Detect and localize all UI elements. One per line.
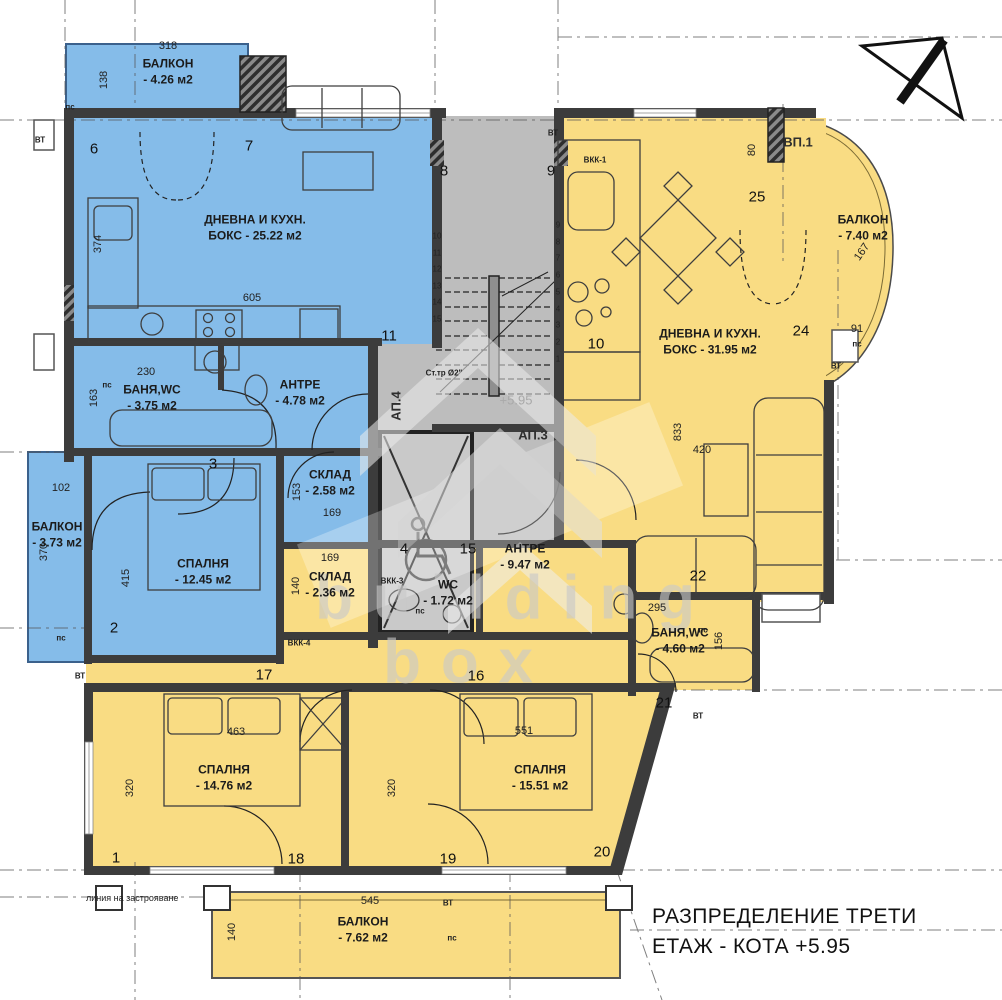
dimension-label: 156: [713, 632, 725, 650]
apartment-label: АП.4: [389, 391, 404, 420]
room-name: СКЛАД: [305, 569, 355, 585]
room-label: БАЛКОН- 7.40 м2: [838, 212, 889, 243]
grid-number: 16: [468, 668, 485, 685]
room-name: БАЛКОН: [143, 56, 194, 72]
room-label: СКЛАД- 2.58 м2: [305, 467, 355, 498]
dimension-label: 545: [361, 895, 379, 907]
dimension-label: 102: [52, 482, 70, 494]
utility-tag: пс: [852, 340, 861, 349]
room-label: СКЛАД- 2.36 м2: [305, 569, 355, 600]
dimension-label: 605: [243, 292, 261, 304]
stair-step-number: 7: [556, 254, 560, 263]
room-area: - 1.72 м2: [423, 593, 473, 609]
room-name: АНТРЕ: [500, 541, 550, 557]
room-label: АНТРЕ- 4.78 м2: [275, 377, 325, 408]
stair-step-number: 14: [433, 298, 442, 307]
stair-step-number: 11: [433, 249, 441, 258]
dimension-label: 91: [851, 323, 863, 335]
grid-number: 24: [793, 323, 810, 340]
room-area: - 12.45 м2: [175, 572, 231, 588]
room-name: БАЛКОН: [338, 914, 389, 930]
grid-number: 25: [749, 189, 766, 206]
utility-tag: пс: [56, 634, 65, 643]
dimension-label: 140: [290, 577, 302, 595]
grid-number: 6: [90, 141, 98, 158]
room-name: WC: [423, 577, 473, 593]
stair-step-number: 2: [556, 338, 560, 347]
room-area: - 4.60 м2: [651, 641, 708, 657]
room-label: СПАЛНЯ- 12.45 м2: [175, 556, 231, 587]
room-area: - 7.62 м2: [338, 930, 389, 946]
room-name: ДНЕВНА И КУХН.: [659, 326, 761, 342]
room-name: СПАЛНЯ: [512, 762, 568, 778]
apartment-label: ВП.1: [783, 135, 813, 150]
room-label: ДНЕВНА И КУХН.БОКС - 25.22 м2: [204, 212, 306, 243]
dimension-label: 463: [227, 726, 245, 738]
utility-tag: пс: [65, 103, 74, 112]
room-label: АНТРЕ- 9.47 м2: [500, 541, 550, 572]
dimension-label: 833: [672, 423, 684, 441]
stair-step-number: 3: [556, 321, 560, 330]
room-label: СПАЛНЯ- 14.76 м2: [196, 762, 252, 793]
grid-number: 22: [690, 568, 707, 585]
room-area: - 2.58 м2: [305, 483, 355, 499]
dimension-label: 551: [515, 725, 533, 737]
room-area: БОКС - 31.95 м2: [659, 342, 761, 358]
room-name: АНТРЕ: [275, 377, 325, 393]
grid-number: 19: [440, 851, 457, 868]
room-name: БАЛКОН: [32, 519, 83, 535]
grid-number: 7: [245, 138, 253, 155]
stair-step-number: 4: [556, 305, 560, 314]
apartment-label: АП.3: [518, 428, 547, 443]
utility-tag: ВКК-1: [584, 156, 607, 165]
room-label: СПАЛНЯ- 15.51 м2: [512, 762, 568, 793]
dimension-label: 415: [120, 569, 132, 587]
building-line-label: линия на застрояване: [86, 893, 178, 903]
grid-number: 21: [656, 695, 673, 712]
grid-number: 20: [594, 844, 611, 861]
dimension-label: 230: [137, 366, 155, 378]
dimension-label: 138: [98, 71, 110, 89]
dimension-label: 163: [88, 389, 100, 407]
stair-step-number: 6: [556, 271, 560, 280]
grid-number: 17: [256, 667, 273, 684]
room-label: ДНЕВНА И КУХН.БОКС - 31.95 м2: [659, 326, 761, 357]
stair-step-number: 12: [433, 265, 442, 274]
utility-tag: ВКК-4: [288, 639, 311, 648]
grid-number: 4: [400, 541, 408, 558]
room-name: СПАЛНЯ: [196, 762, 252, 778]
dimension-label: 318: [159, 40, 177, 52]
room-name: БАНЯ,WC: [123, 382, 180, 398]
dimension-label: 80: [746, 144, 758, 156]
utility-tag: ВТ: [35, 136, 45, 145]
dimension-label: 374: [92, 235, 104, 253]
stair-step-number: 9: [556, 221, 560, 230]
room-area: - 14.76 м2: [196, 778, 252, 794]
room-area: БОКС - 25.22 м2: [204, 228, 306, 244]
dimension-label: 320: [124, 779, 136, 797]
dimension-label: 153: [291, 483, 303, 501]
grid-number: 18: [288, 851, 305, 868]
utility-tag: ВТ: [75, 672, 85, 681]
room-area: - 15.51 м2: [512, 778, 568, 794]
grid-number: 9: [547, 163, 555, 180]
stair-step-number: 5: [556, 288, 560, 297]
utility-tag: ВТ: [831, 362, 841, 371]
room-label: БАЛКОН- 7.62 м2: [338, 914, 389, 945]
grid-number: 2: [110, 620, 118, 637]
stair-step-number: 13: [433, 282, 442, 291]
utility-tag: ВКК-3: [381, 577, 404, 586]
room-area: - 4.26 м2: [143, 72, 194, 88]
utility-tag: пс: [415, 607, 424, 616]
grid-number: 8: [440, 163, 448, 180]
room-name: СКЛАД: [305, 467, 355, 483]
utility-tag: ВТ: [548, 129, 558, 138]
floor-plan-page: building box +5.95 БАЛКОН- 4.26 м2ДНЕВНА…: [0, 0, 1002, 1000]
utility-tag: пс: [698, 626, 707, 635]
dimension-label: 320: [386, 779, 398, 797]
room-name: ДНЕВНА И КУХН.: [204, 212, 306, 228]
utility-tag: Ст.тр Ø2": [426, 369, 463, 378]
dimension-label: 169: [323, 507, 341, 519]
grid-number: 1: [112, 850, 120, 867]
labels-layer: БАЛКОН- 4.26 м2ДНЕВНА И КУХН.БОКС - 25.2…: [0, 0, 1002, 1000]
room-area: - 4.78 м2: [275, 393, 325, 409]
room-area: - 3.75 м2: [123, 398, 180, 414]
utility-tag: пс: [102, 381, 111, 390]
stair-step-number: 10: [433, 232, 442, 241]
stair-step-number: 15: [433, 315, 442, 324]
stair-step-number: 1: [556, 355, 560, 364]
drawing-title-line1: РАЗПРЕДЕЛЕНИЕ ТРЕТИ: [652, 902, 917, 932]
stair-step-number: 8: [556, 238, 560, 247]
room-label: БАНЯ,WC- 3.75 м2: [123, 382, 180, 413]
dimension-label: 167: [852, 241, 872, 263]
room-area: - 9.47 м2: [500, 557, 550, 573]
drawing-title: РАЗПРЕДЕЛЕНИЕ ТРЕТИ ЕТАЖ - КОТА +5.95: [652, 902, 917, 963]
room-label: WC- 1.72 м2: [423, 577, 473, 608]
grid-number: 15: [460, 541, 477, 558]
grid-number: 3: [209, 456, 217, 473]
dimension-label: 420: [693, 444, 711, 456]
grid-number: 11: [381, 328, 397, 345]
room-name: СПАЛНЯ: [175, 556, 231, 572]
room-name: БАЛКОН: [838, 212, 889, 228]
dimension-label: 140: [226, 923, 238, 941]
utility-tag: ВТ: [443, 899, 453, 908]
drawing-title-line2: ЕТАЖ - КОТА +5.95: [652, 932, 917, 962]
utility-tag: пс: [447, 934, 456, 943]
grid-number: 10: [588, 336, 605, 353]
dimension-label: 295: [648, 602, 666, 614]
dimension-label: 370: [38, 543, 50, 561]
dimension-label: 169: [321, 552, 339, 564]
utility-tag: ВТ: [693, 712, 703, 721]
room-area: - 2.36 м2: [305, 585, 355, 601]
room-label: БАЛКОН- 4.26 м2: [143, 56, 194, 87]
